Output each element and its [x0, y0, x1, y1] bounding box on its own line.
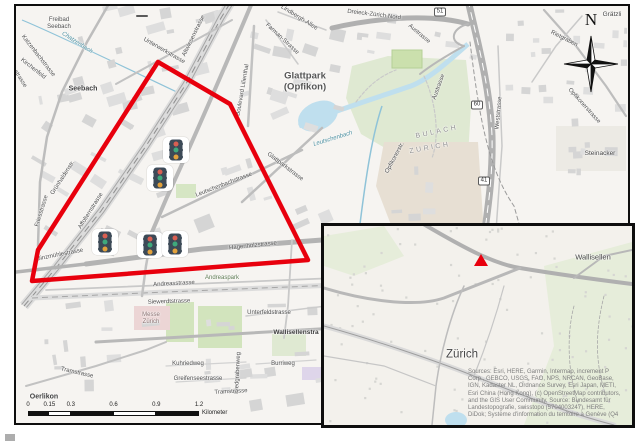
scale-bar-segments — [28, 411, 199, 416]
map-label: Wallisellenstra — [273, 330, 318, 337]
sports-field — [392, 50, 422, 68]
messe-building — [134, 306, 170, 330]
map-label: Burriweg — [271, 361, 295, 367]
map-label: Kuhriedweg — [172, 361, 204, 367]
map-label: Seebach — [47, 24, 71, 30]
scale-tick-label: 0 — [26, 402, 29, 408]
route-shield: 41 — [478, 177, 490, 186]
map-label: Freibad — [49, 17, 69, 23]
map-label: Zürich — [143, 319, 160, 325]
scale-bar: Kilometer 00.150.30.60.91.2 — [16, 394, 256, 420]
map-label: Glattpark — [284, 71, 326, 81]
attribution-line: IGN, Kadaster NL, Ordnance Survey, Esri … — [468, 383, 632, 390]
map-label: Wallisellen — [575, 253, 611, 261]
scale-tick-label: 0.6 — [109, 402, 117, 408]
scale-tick-label: 0.9 — [152, 402, 160, 408]
map-label: Zürich — [446, 349, 478, 361]
figure-caption-fragment — [5, 434, 15, 441]
attribution-line: DiDok; Système d'information du territoi… — [468, 412, 632, 419]
north-arrow: N — [561, 10, 621, 100]
map-label: Unterfeldstrasse — [247, 310, 291, 316]
scale-tick-label: 0.15 — [44, 402, 56, 408]
north-label: N — [585, 10, 597, 30]
map-figure: N Kilometer 00.150.30.60.91.2 FreibadSee… — [0, 0, 640, 445]
route-shield — [136, 15, 148, 17]
location-marker-icon — [474, 254, 488, 266]
map-label: Andreaspark — [205, 275, 239, 281]
traffic-light-icon — [92, 229, 118, 255]
attribution-line: Landestopografie, swisstopo (5704003247)… — [468, 405, 632, 412]
map-label: Greifenseestrasse — [174, 376, 223, 382]
map-label: Messe — [142, 312, 160, 318]
traffic-light-icon — [147, 165, 173, 191]
scale-tick-label: 0.3 — [67, 402, 75, 408]
traffic-light-icon — [163, 137, 189, 163]
compass-star-icon — [561, 32, 621, 96]
map-label: Steinacker — [585, 151, 616, 158]
attribution-line: Sources: Esri, HERE, Garmin, Intermap, i… — [468, 369, 632, 376]
inset-lake — [445, 412, 467, 425]
scale-tick-label: 1.2 — [195, 402, 203, 408]
traffic-light-icon — [162, 231, 188, 257]
locator-inset-map: Sources: Esri, HERE, Garmin, Intermap, i… — [321, 223, 635, 428]
attribution-line: and the GIS User Community, Source: Bund… — [468, 398, 632, 405]
attribution-line: Esri China (Hong Kong), (c) OpenStreetMa… — [468, 391, 632, 398]
route-shield: 60 — [471, 101, 483, 110]
traffic-light-icon — [137, 232, 163, 258]
map-label: Seebach — [69, 86, 98, 93]
attribution-line: Corp., GEBCO, USGS, FAO, NPS, NRCAN, Geo… — [468, 376, 632, 383]
scale-bar-unit: Kilometer — [202, 410, 227, 416]
route-shield: 51 — [434, 8, 446, 17]
map-label: (Opfikon) — [284, 82, 326, 92]
attribution-text: Sources: Esri, HERE, Garmin, Intermap, i… — [468, 369, 632, 419]
